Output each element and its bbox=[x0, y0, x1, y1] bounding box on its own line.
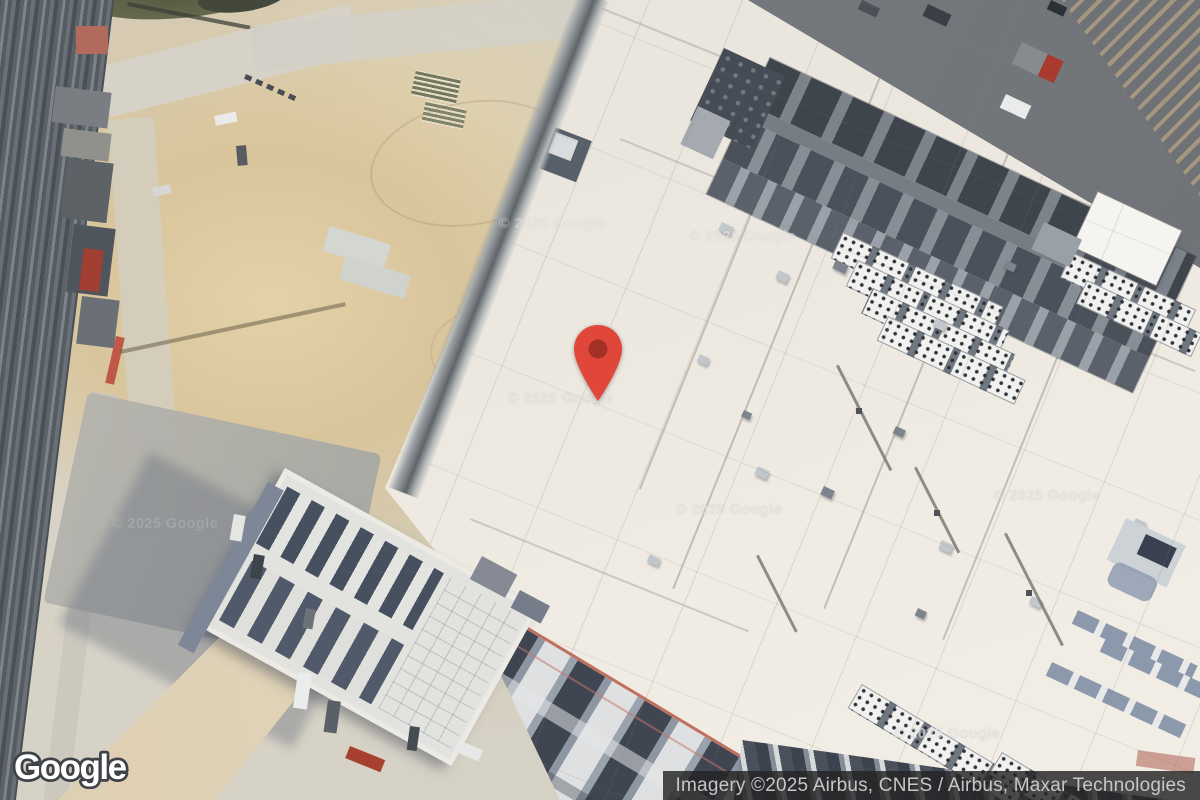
unit-row bbox=[1100, 638, 1200, 703]
google-watermark: © 2025 Google bbox=[676, 502, 782, 518]
rooftop-unit bbox=[1105, 560, 1159, 604]
roof-vent bbox=[915, 608, 927, 619]
roof-vent bbox=[832, 260, 848, 274]
flatbed-truck bbox=[1012, 42, 1064, 83]
pipe-node bbox=[1026, 590, 1032, 596]
unit-row bbox=[1072, 610, 1198, 679]
roof-seam bbox=[639, 90, 802, 489]
roof-seam bbox=[672, 0, 914, 589]
rooftop-unit bbox=[1031, 222, 1082, 267]
rooftop-equipment-band bbox=[707, 58, 1196, 393]
google-watermark: © 2025 Google bbox=[994, 488, 1100, 504]
vegetation bbox=[196, 0, 289, 18]
hvac-unit-row bbox=[846, 260, 1010, 357]
pipe-node bbox=[856, 408, 862, 414]
satellite-map[interactable]: © 2025 Google © 2025 Google © 2025 Googl… bbox=[0, 0, 1200, 800]
roof-vent bbox=[1053, 666, 1066, 678]
pipe-stack bbox=[411, 70, 461, 105]
roof-seam bbox=[942, 120, 1154, 640]
roof-vent bbox=[697, 354, 710, 366]
skylight-frame bbox=[1107, 518, 1186, 588]
dirt-road bbox=[250, 0, 583, 72]
site-hut bbox=[76, 26, 108, 54]
hvac-unit-row bbox=[861, 288, 1015, 380]
roof-pipe bbox=[1004, 533, 1064, 647]
roof-vent bbox=[820, 486, 835, 499]
hvac-unit-row bbox=[831, 232, 1004, 333]
car bbox=[858, 0, 880, 18]
penthouse-block bbox=[1073, 192, 1182, 285]
roof-seam bbox=[620, 138, 1196, 372]
location-pin[interactable] bbox=[573, 324, 623, 402]
google-watermark: © 2025 Google bbox=[499, 216, 605, 232]
roof-pipe bbox=[836, 365, 892, 472]
roof-vent bbox=[1132, 518, 1147, 531]
roof-vent bbox=[1029, 596, 1043, 608]
white-van bbox=[1000, 94, 1032, 119]
google-watermark: © 2025 Google bbox=[894, 726, 1000, 742]
roof-vent bbox=[938, 540, 954, 554]
hvac-unit-row bbox=[1060, 252, 1196, 335]
barrier-row bbox=[244, 74, 301, 103]
roof-pipe bbox=[914, 467, 960, 554]
roof-pipe bbox=[756, 555, 798, 633]
hvac-unit-row bbox=[877, 316, 1026, 405]
google-logo[interactable]: Google bbox=[10, 743, 160, 794]
hvac-unit-row bbox=[1076, 280, 1200, 357]
google-watermark: © 2025 Google bbox=[112, 516, 218, 532]
storage-container bbox=[76, 296, 120, 348]
pin-icon bbox=[573, 324, 623, 402]
roof-vent bbox=[1003, 260, 1017, 272]
car bbox=[1047, 0, 1068, 17]
unit-row bbox=[1046, 662, 1188, 739]
google-watermark: © 2025 Google bbox=[690, 229, 796, 245]
attribution-text: Imagery ©2025 Airbus, CNES / Airbus, Max… bbox=[676, 775, 1186, 797]
roof-vent bbox=[647, 554, 661, 566]
roof-vent bbox=[741, 410, 752, 420]
pipe-node bbox=[934, 510, 940, 516]
storage-container bbox=[52, 86, 112, 129]
roof-annex bbox=[680, 106, 730, 159]
car bbox=[923, 4, 952, 27]
roof-vent bbox=[893, 426, 906, 438]
roof-vent bbox=[754, 466, 770, 480]
storage-container bbox=[61, 128, 112, 162]
skylight-opening bbox=[1137, 534, 1177, 568]
roof-vent bbox=[775, 270, 790, 283]
roof-seam bbox=[593, 4, 1196, 249]
imagery-attribution: Imagery ©2025 Airbus, CNES / Airbus, Max… bbox=[663, 771, 1200, 800]
storage-container bbox=[61, 158, 114, 223]
google-logo-text: Google bbox=[14, 748, 127, 787]
roof-core bbox=[690, 48, 785, 149]
roof-vent bbox=[932, 318, 948, 332]
roof-seam bbox=[823, 52, 1050, 609]
google-logo-icon: Google bbox=[10, 743, 160, 789]
